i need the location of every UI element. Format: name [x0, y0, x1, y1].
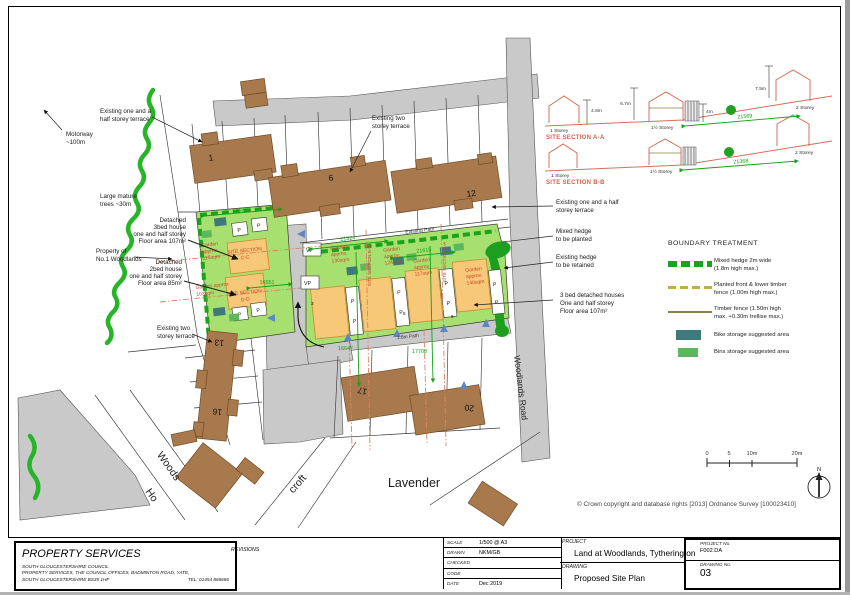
legend-item-text: (1.8m high max.): [714, 266, 771, 274]
terrace-6-12: [267, 134, 503, 237]
section-a-dim: 21569: [737, 113, 752, 120]
building-bottom-garage: [236, 458, 264, 485]
woods-label-1: Woods: [154, 450, 182, 484]
field-row-date: DATEDec 2019: [444, 579, 561, 589]
project-cell: PROJECT Land at Woodlands, Tytherington: [560, 538, 684, 563]
field-label: DATE: [444, 581, 479, 586]
storey-label: 1 Storey: [551, 173, 570, 179]
height-label: 7.5m: [755, 86, 766, 92]
page-edge-shadow-right: [845, 0, 850, 595]
drawing-no-value: 03: [700, 568, 711, 579]
bins-storage: [201, 230, 212, 238]
annotation: 3 bed detached houses: [560, 292, 624, 299]
field-label: DRAWN: [444, 550, 479, 555]
field-label: CODE: [444, 571, 479, 576]
annotation: trees ~30m: [100, 201, 131, 208]
storey-label: 2 Storey: [796, 105, 815, 111]
annotation: Large mature: [100, 193, 137, 200]
building-bottom-small: [171, 430, 197, 447]
annotation: Existing one and a half: [556, 199, 619, 206]
legend-title: BOUNDARY TREATMENT: [668, 240, 836, 247]
legend-item-text: Timber fence (1.50m high: [714, 306, 783, 314]
field-value: 1/500 @ A3: [479, 540, 507, 546]
project-label: PROJECT: [562, 539, 586, 545]
annotation: one and half storey: [129, 273, 183, 280]
legend-item-planted-fence: Planted front & lower timberfence (1.00m…: [668, 282, 836, 298]
storey-label: 1½ Storey: [650, 168, 673, 175]
mixed-hedge-swatch: [668, 261, 712, 267]
number-box: PROJECT No. F002.DA DRAWING No. 03: [684, 538, 841, 590]
section-mark-bb: SITE SECTION B-B: [367, 246, 372, 287]
storey-label: 2 Storey: [795, 150, 814, 156]
annotation: ~100m: [66, 139, 85, 146]
bins-storage-swatch: [678, 348, 698, 357]
annotation: Floor area 107m²: [139, 238, 186, 245]
scale-tick-label: 5: [727, 451, 730, 457]
field-value: NKM/GB: [479, 550, 500, 556]
dim-16551: 16551: [260, 280, 275, 286]
scale-bar-labels: 0 5 10m 20m: [705, 451, 802, 457]
project-no-value: F002.DA: [700, 548, 722, 554]
height-label: 4m: [706, 109, 713, 115]
field-row-checked: CHECKED: [444, 558, 561, 568]
house-number-13: 13: [214, 337, 225, 348]
revisions-area: REVISIONS: [227, 538, 443, 589]
annotation: one and half storey: [133, 231, 187, 238]
field-row-scale: SCALE1/500 @ A3: [444, 538, 561, 548]
annotation: 3bed house: [154, 224, 187, 231]
bins-storage: [453, 243, 464, 251]
visitor-parking-label: VP: [304, 281, 311, 287]
building-bottom-right: [468, 481, 517, 526]
annotation: 2bed house: [150, 266, 183, 273]
annotation: half storey terrace: [100, 116, 150, 123]
annotation: Existing one and a: [100, 108, 151, 115]
boundary-treatment-legend: BOUNDARY TREATMENT Mixed hedge 2m wide(1…: [668, 240, 836, 365]
annotation: storey terrace: [157, 333, 195, 340]
planted-fence-swatch: [668, 286, 712, 289]
company-box: PROPERTY SERVICES SOUTH GLOUCESTERSHIRE …: [14, 541, 237, 591]
access-drive: [263, 360, 343, 444]
bike-storage: [214, 217, 227, 226]
shrub: [726, 105, 736, 115]
bins-storage: [229, 313, 240, 321]
bike-storage-swatch: [676, 330, 701, 340]
drawing-sheet: P P P P P: [0, 0, 850, 595]
drawing-label: DRAWING: [562, 564, 587, 570]
plot-number: 6: [451, 314, 454, 319]
site-sections: 21569 21368 1 Storey 1½ Storey 2 Storey …: [545, 66, 832, 186]
north-arrow: N: [808, 467, 830, 498]
storey-label: 1 Storey: [550, 128, 569, 134]
scale-tick-label: 20m: [792, 451, 803, 457]
shrub: [724, 147, 734, 157]
building-17: [341, 366, 421, 421]
dim-17708: 17708: [412, 349, 427, 355]
company-name: PROPERTY SERVICES: [22, 548, 229, 560]
bike-storage: [213, 307, 226, 316]
storey-label: 1½ Storey: [651, 124, 674, 131]
legend-item-timber-fence: Timber fence (1.50m highmax. +0.30m trel…: [668, 306, 836, 322]
house-number-20: 20: [464, 403, 475, 414]
copyright-note: © Crown copyright and database rights [2…: [577, 501, 796, 508]
dim-16647: 16647: [338, 346, 353, 352]
project-no-label: PROJECT No.: [700, 541, 730, 546]
bottom-left-road: [18, 390, 150, 520]
annotation: to be retained: [556, 262, 594, 269]
legend-item-bike-storage: Bike storage suggested area: [668, 330, 836, 340]
field-value: Dec 2019: [479, 581, 502, 587]
annotation: Existing hedge: [556, 254, 597, 261]
annotation: Detached: [160, 217, 187, 224]
address-line: SOUTH GLOUCESTERSHIRE BS35 1HF: [22, 577, 109, 583]
building-bottom-house: [176, 443, 242, 508]
section-mark-dd: D-D: [241, 296, 251, 303]
drawing-no-cell: DRAWING No. 03: [686, 561, 839, 583]
scale-bar: [707, 458, 797, 467]
scale-tick-label: 10m: [747, 451, 758, 457]
croft-label: croft: [287, 472, 310, 495]
legend-item-text: Bike storage suggested area: [714, 332, 789, 338]
legend-item-mixed-hedge: Mixed hedge 2m wide(1.8m high max.): [668, 258, 836, 274]
house-number-16: 16: [212, 406, 223, 417]
annotation: storey terrace: [372, 123, 410, 130]
legend-item-text: Bins storage suggested area: [714, 349, 789, 355]
phone-number: TEL: 01454 868686: [188, 577, 229, 583]
legend-item-text: max. +0.30m trellise max.): [714, 314, 783, 322]
new-house: [359, 277, 396, 332]
annotation: to be planted: [556, 236, 592, 243]
project-name: Land at Woodlands, Tytherington: [574, 548, 695, 558]
lavender-label: Lavender: [388, 476, 440, 490]
legend-item-text: Mixed hedge 2m wide: [714, 258, 771, 266]
annotation: Mixed hedge: [556, 228, 592, 235]
annotation: Detached: [156, 259, 183, 266]
annotation: Floor area 107m²: [560, 308, 607, 315]
project-no-cell: PROJECT No. F002.DA: [686, 540, 839, 561]
section-b-dim: 21368: [733, 158, 748, 165]
legend-item-text: Planted front & lower timber: [714, 282, 787, 290]
annotation: Existing two: [372, 115, 406, 122]
drawing-info-table: SCALE1/500 @ A3 DRAWNNKM/GB CHECKED CODE…: [443, 538, 562, 589]
plot-number: 3: [311, 301, 314, 306]
height-label: 4.8m: [591, 108, 602, 114]
annotation: One and half storey: [560, 300, 615, 307]
annotation: storey terrace: [556, 207, 594, 214]
annotation: Property of: [96, 248, 127, 255]
section-b-title: SITE SECTION B-B: [546, 180, 605, 186]
annotation: Floor area 85m²: [138, 280, 182, 287]
drawing-no-label: DRAWING No.: [700, 562, 731, 567]
timber-fence-swatch: [668, 311, 712, 313]
field-label: SCALE: [444, 540, 479, 545]
drawing-cell: DRAWING Proposed Site Plan: [560, 563, 684, 589]
section-mark-cc: C-C: [241, 254, 251, 261]
drawing-name: Proposed Site Plan: [574, 573, 645, 583]
terrace-1: [188, 124, 277, 189]
new-house: [310, 286, 349, 339]
field-label: CHECKED: [444, 560, 479, 565]
scale-tick-label: 0: [705, 451, 708, 457]
section-mark-aa: SITE SECTION A-A: [442, 241, 447, 283]
legend-item-text: fence (1.00m high max.): [714, 290, 787, 298]
field-row-code: CODE: [444, 569, 561, 579]
house-number-12: 12: [466, 188, 477, 199]
company-address: SOUTH GLOUCESTERSHIRE COUNCIL PROPERTY S…: [22, 564, 229, 583]
field-row-drawn: DRAWNNKM/GB: [444, 548, 561, 558]
title-block: PROPERTY SERVICES SOUTH GLOUCESTERSHIRE …: [8, 537, 841, 589]
section-a-title: SITE SECTION A-A: [546, 135, 605, 141]
plot-number: 5: [403, 311, 406, 316]
project-area: PROJECT Land at Woodlands, Tytherington …: [560, 538, 684, 589]
annotation: Motorway: [66, 131, 94, 138]
height-label: 6.7m: [620, 101, 631, 107]
annotation: Existing two: [157, 325, 191, 332]
revisions-label: REVISIONS: [231, 547, 259, 553]
legend-item-bins-storage: Bins storage suggested area: [668, 348, 836, 357]
